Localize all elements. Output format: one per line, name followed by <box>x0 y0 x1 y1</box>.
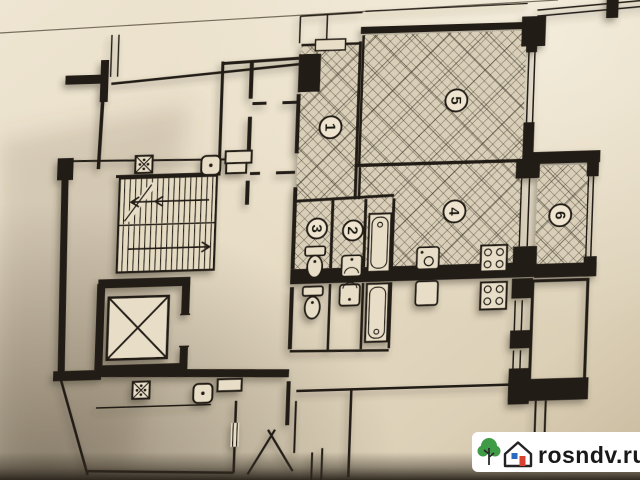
bathtub-icon-lower <box>365 283 389 342</box>
watermark: rosndv.ru <box>472 432 640 472</box>
wall-pillar <box>298 54 321 93</box>
room-4-number: 4 <box>445 207 462 217</box>
duct-box-lower <box>217 379 241 392</box>
garbage-chute-icon <box>201 156 221 176</box>
floorplan-svg: 1 5 4 3 2 6 rosndv.ru <box>0 0 640 480</box>
washbasin-icon <box>341 255 362 277</box>
room-6-number: 6 <box>551 211 568 220</box>
duct-box <box>225 151 251 164</box>
room-5-hatch2 <box>360 30 527 165</box>
washbasin-icon-lower <box>339 282 360 306</box>
kitchen-sink-icon-lower <box>415 281 438 306</box>
house-door <box>520 456 526 466</box>
kitchen-sink-icon <box>416 247 439 270</box>
floorplan-photo: 1 5 4 3 2 6 rosndv.ru <box>0 0 640 480</box>
room-5-number: 5 <box>447 96 464 105</box>
room-3-number: 3 <box>308 224 325 233</box>
room-2-number: 2 <box>344 226 361 235</box>
vent-shaft-icon <box>135 156 153 174</box>
garbage-chute-icon-lower <box>193 384 213 404</box>
watermark-site-text: rosndv.ru <box>538 442 640 468</box>
stove-icon-lower <box>480 282 507 310</box>
staircase <box>113 174 219 273</box>
room-1-number: 1 <box>321 123 338 132</box>
stove-icon <box>480 245 507 272</box>
bathtub-icon <box>367 213 391 272</box>
window-room1 <box>315 39 345 51</box>
house-window <box>512 453 518 459</box>
vent-shaft-icon-lower <box>132 381 150 399</box>
